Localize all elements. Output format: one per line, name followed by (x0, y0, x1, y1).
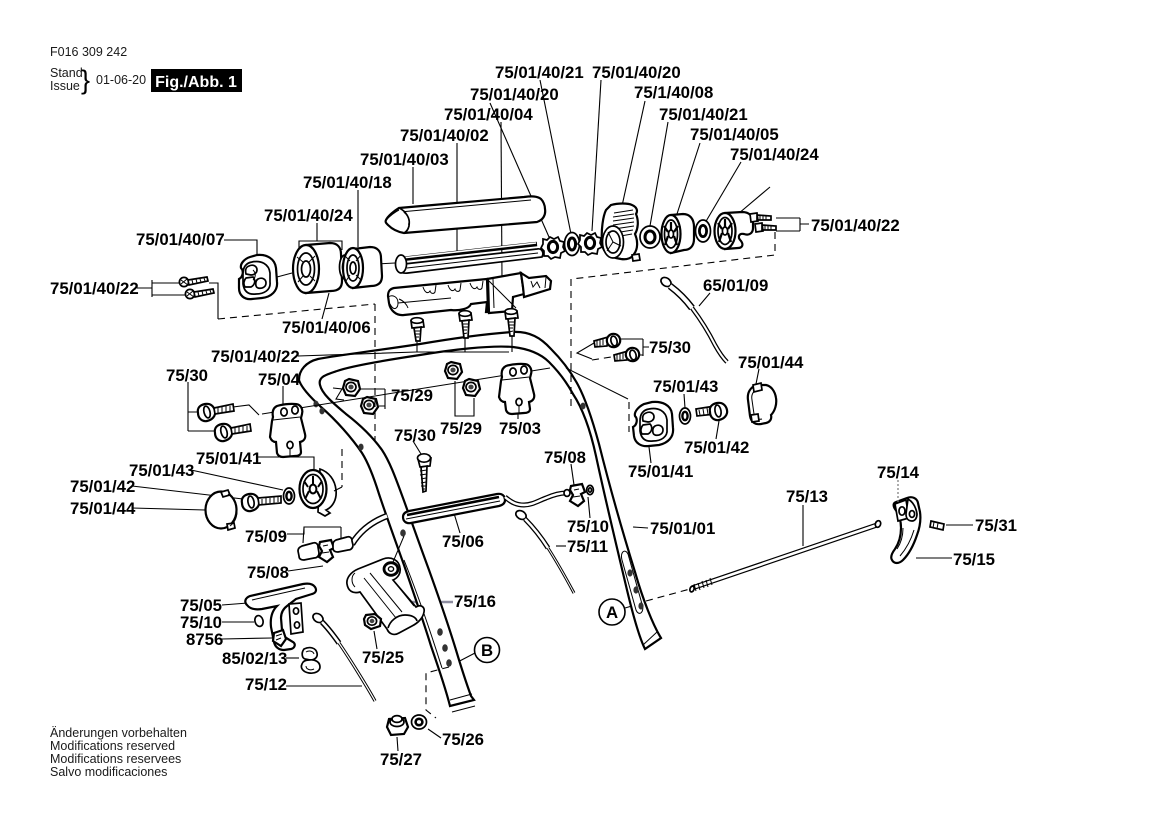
svg-text:Stand: Stand (50, 66, 83, 80)
svg-text:01-06-20: 01-06-20 (96, 73, 146, 87)
svg-text:Salvo modificaciones: Salvo modificaciones (50, 765, 167, 779)
svg-text:75/01/44: 75/01/44 (738, 353, 804, 372)
svg-text:}: } (81, 65, 90, 95)
svg-text:75/09: 75/09 (245, 527, 287, 546)
svg-text:Modifications reserved: Modifications reserved (50, 739, 175, 753)
svg-text:75/01/40/21: 75/01/40/21 (495, 63, 584, 82)
svg-text:8756: 8756 (186, 630, 223, 649)
svg-text:75/01/40/20: 75/01/40/20 (470, 85, 559, 104)
svg-text:75/01/40/20: 75/01/40/20 (592, 63, 681, 82)
svg-text:75/06: 75/06 (442, 532, 484, 551)
svg-text:75/10: 75/10 (567, 517, 609, 536)
svg-text:75/13: 75/13 (786, 487, 828, 506)
svg-text:75/03: 75/03 (499, 419, 541, 438)
svg-text:75/01/40/21: 75/01/40/21 (659, 105, 748, 124)
svg-text:75/25: 75/25 (362, 648, 404, 667)
svg-text:75/01/41: 75/01/41 (196, 449, 261, 468)
svg-text:Fig./Abb. 1: Fig./Abb. 1 (155, 74, 237, 91)
svg-text:75/01/43: 75/01/43 (129, 461, 194, 480)
svg-text:75/15: 75/15 (953, 550, 995, 569)
svg-text:75/01/44: 75/01/44 (70, 499, 136, 518)
svg-text:75/01/40/22: 75/01/40/22 (811, 216, 900, 235)
svg-text:75/01/41: 75/01/41 (628, 462, 693, 481)
svg-text:75/01/40/02: 75/01/40/02 (400, 126, 489, 145)
svg-text:75/01/40/03: 75/01/40/03 (360, 150, 449, 169)
svg-text:75/01/40/05: 75/01/40/05 (690, 125, 779, 144)
svg-text:65/01/09: 65/01/09 (703, 276, 768, 295)
svg-text:75/1/40/08: 75/1/40/08 (634, 83, 713, 102)
svg-text:75/01/01: 75/01/01 (650, 519, 715, 538)
svg-text:75/01/40/24: 75/01/40/24 (264, 206, 353, 225)
svg-text:75/01/40/07: 75/01/40/07 (136, 230, 225, 249)
svg-text:75/01/40/18: 75/01/40/18 (303, 173, 392, 192)
svg-text:75/04: 75/04 (258, 370, 301, 389)
svg-text:75/30: 75/30 (394, 426, 436, 445)
svg-text:75/01/40/22: 75/01/40/22 (50, 279, 139, 298)
svg-text:75/01/42: 75/01/42 (684, 438, 749, 457)
svg-text:75/29: 75/29 (391, 386, 433, 405)
svg-text:75/27: 75/27 (380, 750, 422, 769)
svg-text:75/01/43: 75/01/43 (653, 377, 718, 396)
svg-text:75/26: 75/26 (442, 730, 484, 749)
svg-text:75/29: 75/29 (440, 419, 482, 438)
svg-text:75/08: 75/08 (544, 448, 586, 467)
svg-text:75/01/40/06: 75/01/40/06 (282, 318, 371, 337)
svg-text:75/12: 75/12 (245, 675, 287, 694)
svg-text:F016 309 242: F016 309 242 (50, 45, 127, 59)
svg-text:75/01/40/22: 75/01/40/22 (211, 347, 300, 366)
svg-text:75/30: 75/30 (166, 366, 208, 385)
svg-text:75/14: 75/14 (877, 463, 920, 482)
svg-text:75/08: 75/08 (247, 563, 289, 582)
svg-text:A: A (606, 603, 618, 622)
svg-text:75/11: 75/11 (567, 537, 608, 556)
svg-text:Modifications reservees: Modifications reservees (50, 752, 181, 766)
svg-text:Änderungen vorbehalten: Änderungen vorbehalten (50, 726, 187, 740)
svg-text:Issue: Issue (50, 79, 80, 93)
svg-text:75/31: 75/31 (975, 516, 1017, 535)
svg-text:85/02/13: 85/02/13 (222, 649, 287, 668)
svg-text:B: B (481, 641, 493, 660)
svg-text:75/30: 75/30 (649, 338, 691, 357)
svg-text:75/01/40/24: 75/01/40/24 (730, 145, 819, 164)
svg-text:75/01/42: 75/01/42 (70, 477, 135, 496)
svg-text:75/16: 75/16 (454, 592, 496, 611)
svg-text:75/01/40/04: 75/01/40/04 (444, 105, 533, 124)
